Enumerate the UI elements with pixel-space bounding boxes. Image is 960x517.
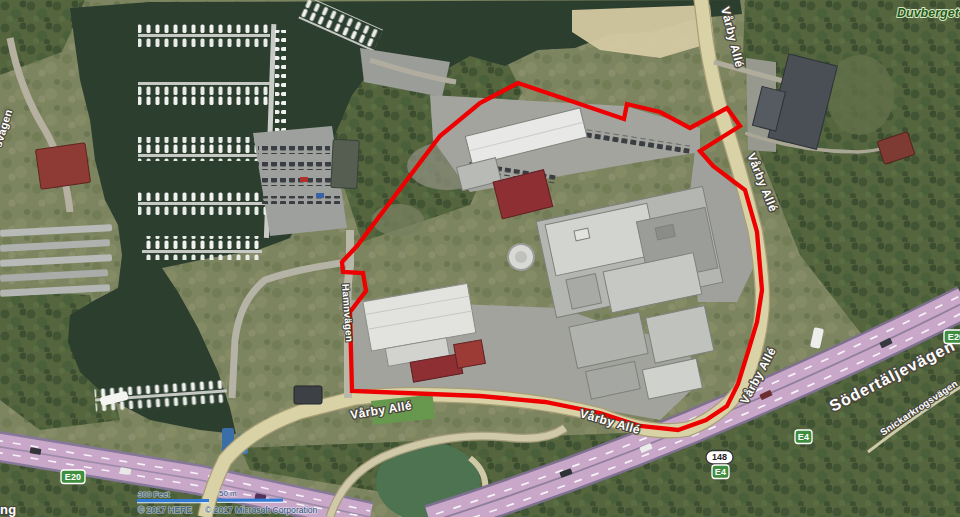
svg-text:E4: E4 (798, 432, 809, 442)
svg-text:E20: E20 (65, 472, 82, 482)
map-canvas[interactable]: Vårby Allé Vårby Allé Vårby Allé Vårby A… (0, 0, 960, 517)
shield-e4-upper: E4 (795, 430, 812, 444)
shield-e20: E20 (61, 470, 85, 484)
aerial-map-screenshot: Vårby Allé Vårby Allé Vårby Allé Vårby A… (0, 0, 960, 517)
road-label-partial-corner: ng (0, 502, 17, 517)
attribution-here: © 2017 HERE (138, 505, 192, 515)
svg-text:148: 148 (712, 452, 727, 462)
svg-text:E20: E20 (948, 332, 960, 342)
place-label-duvberget: Duvberget (897, 6, 960, 20)
shield-e20-clipped: E20 (944, 330, 960, 344)
shield-148: 148 (706, 451, 733, 465)
scale-metric-label: 50 m (219, 489, 237, 498)
svg-text:E4: E4 (715, 467, 726, 477)
scale-imperial-label: 300 Feet (138, 490, 170, 499)
attribution-microsoft: © 2017 Microsoft Corporation (205, 505, 318, 515)
attribution: © 2017 HERE © 2017 Microsoft Corporation (138, 505, 318, 515)
shield-e4-lower: E4 (712, 465, 729, 479)
